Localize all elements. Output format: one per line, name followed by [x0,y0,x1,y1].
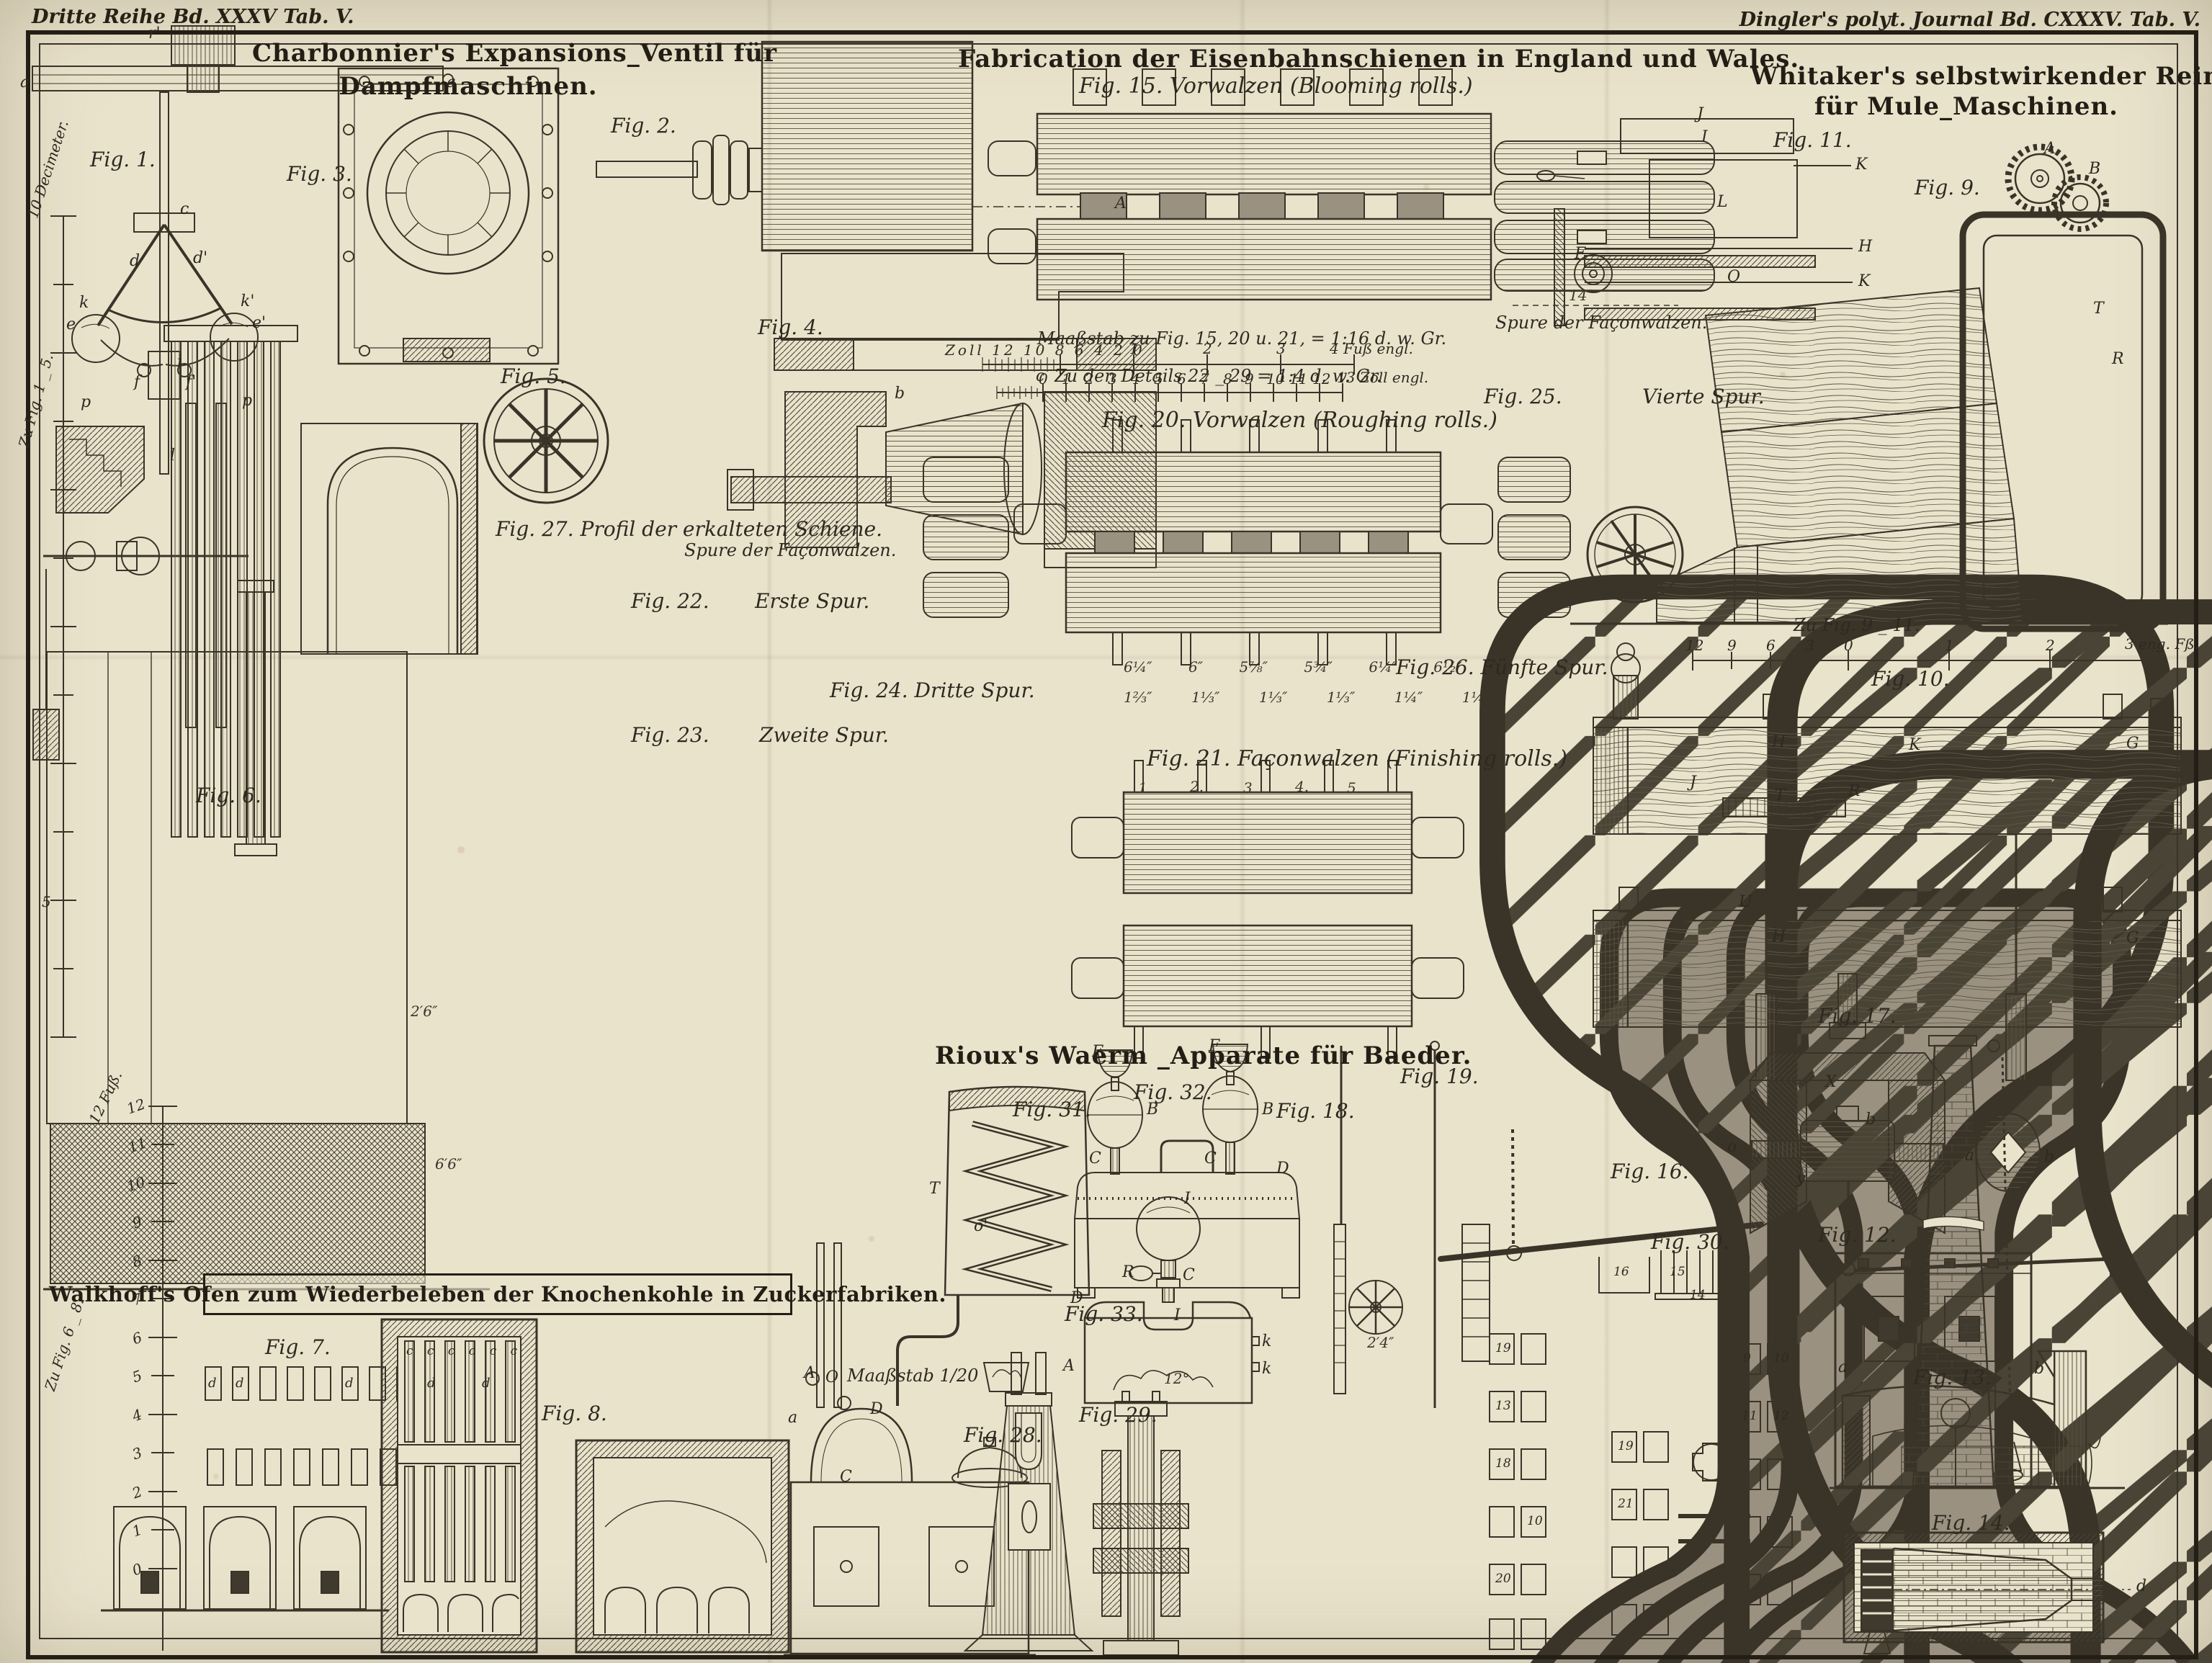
fig1-letter-f: f [134,373,140,391]
scale-fig911-tick-1: 1 [1945,637,1954,654]
fig11-label: Fig. 11. [1773,128,1852,152]
fig4-label: Fig. 4. [758,315,823,339]
title-walkhoff-box: Walkhoff's Ofen zum Wiederbeleben der Kn… [203,1273,792,1315]
fig7-letter-d5: d [482,1376,491,1391]
fig21-groove-4: 4. [1295,778,1309,795]
fig13-label: Fig. 13. [1913,1366,1992,1389]
plate-border-inner [39,43,2178,1639]
fig1-letter-p: p [81,393,91,411]
fig11-letter-O: O [1727,268,1740,286]
fig32-letter-B2: B [1262,1101,1273,1119]
fig4-letter-b: b [895,385,905,403]
fig10-label: Fig. 10. [1871,667,1950,691]
fig29-label: Fig. 29. [1079,1403,1158,1427]
fig1-letter-e: e [66,315,76,333]
fig31-letter-C: C [840,1468,852,1486]
fig14-label: Fig. 14. [1932,1511,2010,1535]
title-fabrication: Fabrication der Eisenbahnschienen in Eng… [958,45,1448,73]
fig33-letter-C: C [1183,1266,1195,1284]
fig11-letter-K: K [1855,156,1867,174]
part-16: 16 [1613,1265,1629,1279]
fig4-letter-c: c [1036,367,1044,385]
scale-details-tick-7: 7 [1200,370,1209,387]
fig33-letter-k: k [1262,1332,1271,1350]
fig12-letter-b: b [2034,1360,2044,1378]
fig18-label: Fig. 18. [1276,1099,1355,1123]
part-10b: 10 [1773,1351,1789,1366]
fig9-letter-T: T [2093,300,2104,318]
scale-left-top-5: 5 [42,893,51,910]
fig1-label: Fig. 1. [90,148,156,171]
fig8-label: Fig. 8. [542,1402,607,1425]
dim-6ft6: 6′6″ [435,1155,462,1173]
fig6-label: Fig. 6. [196,784,261,807]
fig31-letter-A: A [804,1364,815,1382]
fig32-letter-B: B [1147,1101,1158,1119]
fig10-letter-G2: G [2126,929,2139,947]
fig10-letter-R: R [1848,782,1861,800]
scale-fig911-tick-2: 2 [2046,637,2055,654]
scale-fig15-tick-3: 3 [1276,340,1286,357]
scale-details-tick-3: 3 [1108,370,1117,387]
fig21-groove-1: 1 [1138,779,1147,797]
fig22-label: Fig. 22. [631,589,709,613]
scale-fig15-tick-1: 1 [1129,340,1139,357]
title-whitaker-line2: für Mule_Maschinen. [1750,92,2182,121]
part-14: 14 [1690,1288,1706,1302]
fig30-label: Fig. 30. [1651,1230,1729,1254]
fig28-label: Fig. 28. [964,1423,1042,1447]
fig12-label: Fig. 12. [1818,1223,1897,1247]
fig1-letter-c: c [180,200,189,218]
part-19b: 19 [1618,1439,1634,1453]
fig21-groove-2: 2. [1190,778,1204,795]
fig7-label: Fig. 7. [265,1335,331,1359]
scale-details-tick-10: 10 [1266,370,1284,387]
engraving-plate: Dritte Reihe Bd. XXXV Tab. V. Dingler's … [0,0,2212,1663]
fig1-letter-k2: k' [241,292,254,310]
massstab-1-20-label: Maaßstab 1/20 [847,1366,978,1386]
fig1-letter-l: l [170,447,175,465]
spure-rechts-label: Spure der Façonwalzen. [1495,313,1707,333]
fig1-letter-i: i [177,353,182,371]
scale-details-tick-11: 11 [1289,370,1307,387]
fig11-letter-J: J [1697,105,1703,123]
part-9: 9 [1743,1351,1751,1366]
part-11: 11 [1742,1409,1757,1423]
fig3-label: Fig. 3. [287,162,352,186]
scale-details-tick-4: 4 [1131,370,1140,387]
fig11-letter-F: F [1575,245,1585,263]
fig32-letter-I: I [1184,1190,1191,1208]
fig1-letter-r: r' [148,24,161,42]
part-20: 20 [1495,1572,1511,1586]
fig1-letter-f2: f' [186,373,196,391]
fig10-letter-H2: H [1772,928,1786,946]
title-charbonnier-line1: Charbonnier's Expansions_Ventil für [252,39,684,68]
fig33-letter-I: I [1174,1306,1181,1324]
scale-details-title: Zu den Details 22 _ 29 = 1:4 d. w. Gr. [1054,366,1382,386]
fig9-letter-B: B [2089,160,2100,178]
fig1-letter-d2: d' [193,249,207,267]
fig1-letter-k: k [79,294,89,312]
fig10-letter-T: T [1775,786,1786,804]
part-12: 12 [1773,1409,1789,1423]
dim-14in: 14″ [1569,287,1593,304]
scale-details-tick-12: 12 [1312,370,1330,387]
dim-12deg: 12° [1164,1370,1189,1387]
fig11-letter-I: I [1701,128,1708,146]
fig20-title: Fig. 20. Vorwalzen (Roughing rolls.) [1102,408,1497,433]
part-19: 19 [1495,1341,1511,1355]
fig1-letter-d: d [130,252,140,270]
scale-details-tick-6: 6 [1177,370,1186,387]
fig10-letter-H: H [1772,733,1786,751]
fig1-letter-p2: p' [242,392,256,410]
fig17-letter-o: o [1727,1138,1737,1156]
fig21-groove-5: 5. [1347,779,1361,797]
fig17-letter-X: X [1825,1073,1837,1091]
title-rioux: Rioux's Waerm _Apparate für Baeder. [935,1041,1472,1070]
fig14-letter-d: d [2136,1577,2146,1595]
dim-roll-widths-2: 1⅔″ 1⅓″ 1⅓″ 1⅓″ 1¼″ 1¼″ [1124,689,1490,706]
fig32-letter-C2: C [1204,1149,1217,1167]
fig1-letter-a: a [20,73,30,91]
fig17-letter-b: b [1866,1111,1876,1129]
scale-details-tick-2: 2 [1085,370,1094,387]
dim-2ft4: 2′4″ [1367,1334,1394,1351]
scale-fig911-tick-12: 12 [1685,637,1703,654]
fig31-letter-O: O [825,1368,838,1386]
scale-fig911-tick-9: 9 [1727,637,1737,654]
dim-roll-widths: 6¼″ 6″ 5⅞″ 5¾″ 6¼″ 6½″ [1124,658,1462,676]
scale-fig911-right: 3 eng. Fß. [2125,635,2199,653]
fig12-letter-a: a [1838,1358,1848,1376]
part-15: 15 [1670,1265,1685,1279]
part-21: 21 [1618,1497,1634,1511]
fig32-letter-D: D [1276,1160,1289,1178]
fig11-letter-K2: K [1858,272,1870,290]
fig2-label: Fig. 2. [611,114,676,138]
fig24-label: Fig. 24. Dritte Spur. [830,678,1035,702]
scale-fig911-title: Zu Fig. 9 _ 11. [1794,615,1920,635]
fig25-vierte-spur: Vierte Spur. [1642,385,1765,408]
fig7-letter-d4: d [427,1376,436,1391]
fig8-letter-c-row: c c c c c c [406,1344,517,1358]
fig31-letter-o: o' [974,1217,988,1235]
fig10-letter-J: J [1690,774,1696,792]
fig33-letter-R: R [1122,1263,1134,1281]
fig7-letter-d2: d [236,1376,244,1391]
fig31-letter-D: D [870,1400,883,1418]
fig11-letter-L: L [1717,193,1728,211]
fig23-zweite-spur: Zweite Spur. [759,723,889,747]
scale-fig911-tick-6: 6 [1766,637,1776,654]
fig2-letter-A: A [1115,194,1127,212]
dim-2ft6: 2′6″ [411,1003,437,1020]
fig1-letter-a2: a [447,73,456,91]
fig33-letter-k2: k [1262,1360,1271,1378]
scale-fig15-right: 4 Fuß engl. [1330,340,1413,357]
fig32-letter-C: C [1089,1149,1101,1167]
fig7-letter-d3: d [345,1376,354,1391]
fig16-label: Fig. 16. [1611,1160,1689,1183]
fig33-letter-A: A [1063,1357,1075,1375]
fig10-letter-K: K [1909,736,1920,754]
scale-fig15-left-ticks: Zoll 12 10 8 6 4 2 0 [945,341,1145,359]
fig33-letter-D: D [1070,1289,1083,1307]
fig17-letter-b2: b [2044,1148,2054,1166]
scale-details-tick-8: 8 [1223,370,1232,387]
title-whitaker-line1: Whitaker's selbstwirkender Reiniger [1750,62,2182,91]
fig32-letter-F2: F [1209,1037,1219,1055]
scale-fig911-tick-0: 0 [1844,637,1853,654]
fig21-groove-3: 3 [1243,779,1253,797]
part-18: 18 [1495,1456,1511,1471]
fig9-letter-A: A [2044,140,2056,158]
fig22-erste-spur: Erste Spur. [755,589,869,613]
fig31-letter-a: a [788,1409,797,1427]
fig9-label: Fig. 9. [1915,176,1980,200]
fig7-letter-d1: d [208,1376,217,1391]
fig17-letter-a: a [1965,1147,1974,1165]
journal-caption: Dingler's polyt. Journal Bd. CXXXV. Tab.… [1739,9,2200,31]
fig15-title: Fig. 15. Vorwalzen (Blooming rolls.) [1079,73,1473,99]
part-10: 10 [1527,1514,1543,1528]
fig9-letter-R: R [2112,350,2124,368]
fig25-label: Fig. 25. [1484,385,1562,408]
fig1-letter-e2: e' [252,314,266,332]
fig10-letter-U: U [1739,893,1752,911]
fig32-label: Fig. 32. [1134,1080,1212,1104]
scale-details-tick-1: 1 [1062,370,1071,387]
fig32-letter-F: F [1092,1043,1103,1061]
fig5-label: Fig. 5. [501,364,566,388]
title-walkhoff: Walkhoff's Ofen zum Wiederbeleben der Kn… [49,1282,946,1306]
scale-details-tick-9: 9 [1245,370,1254,387]
scale-fig15-tick-2: 2 [1203,340,1212,357]
part-13: 13 [1495,1399,1511,1413]
scale-details-tick-5: 5 [1154,370,1163,387]
fig27-label: Fig. 27. Profil der erkalteten Schiene. [496,517,882,541]
series-caption: Dritte Reihe Bd. XXXV Tab. V. [32,6,354,28]
fig19-label: Fig. 19. [1400,1064,1479,1088]
fig21-title: Fig. 21. Façonwalzen (Finishing rolls.) [1147,746,1567,771]
scale-details-right: 13 Zoll engl. [1337,369,1428,386]
title-charbonnier-line2: Dampfmaschinen. [252,72,684,101]
scale-fig911-tick-3: 3 [1805,637,1814,654]
fig17-label: Fig. 17. [1818,1004,1897,1028]
fig31-label: Fig. 31. [1013,1098,1091,1121]
fig31-letter-T: T [929,1180,940,1198]
fig11-letter-H: H [1858,238,1872,256]
fig17-letter-y: y [1796,1170,1805,1188]
fig23-label: Fig. 23. [631,723,709,747]
fig10-letter-G: G [2126,735,2139,753]
spure-links-label: Spure der Façonwalzen. [684,540,896,560]
